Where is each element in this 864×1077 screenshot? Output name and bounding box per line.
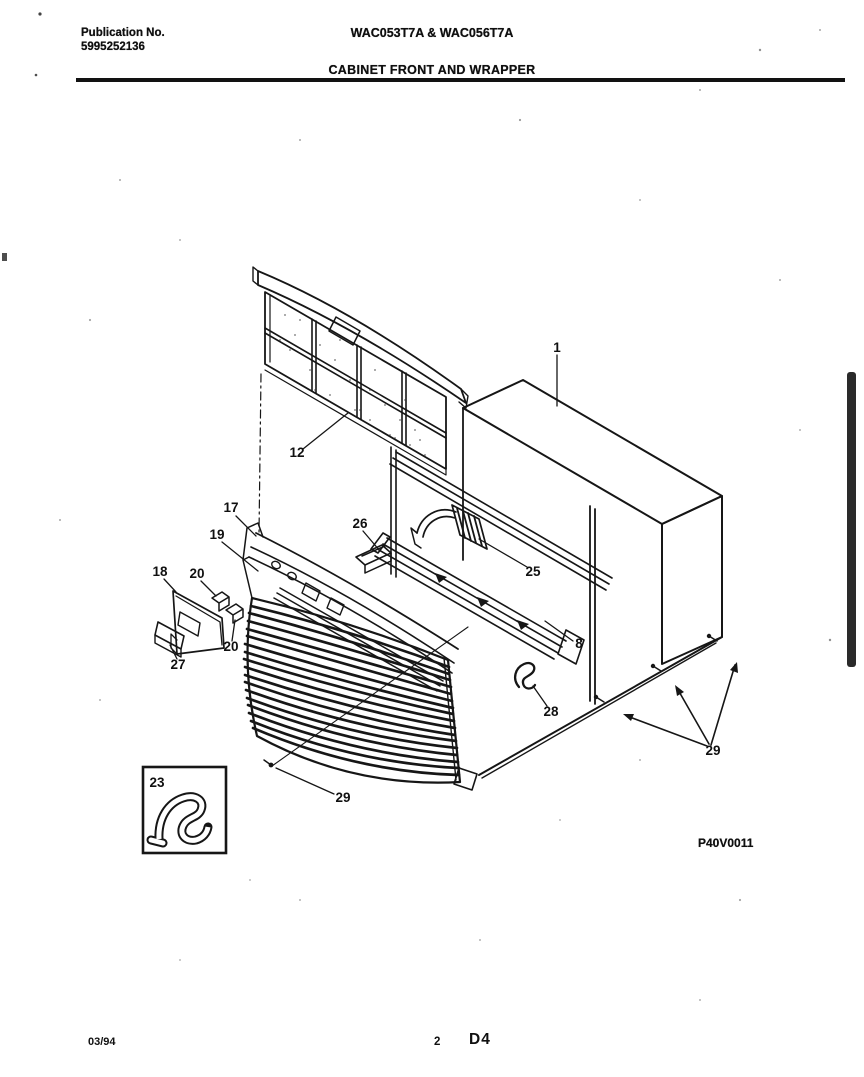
callout-1: 1	[553, 340, 561, 355]
callout-28: 28	[543, 704, 559, 719]
exploded-view-diagram: 12 1 17 19 18 20 20 27 26 25 8 28 29 29 …	[0, 0, 864, 1077]
seal-clip-drawing	[515, 663, 535, 688]
bracket-drawing	[155, 622, 184, 657]
callout-19: 19	[209, 527, 224, 542]
callout-17: 17	[223, 500, 238, 515]
callout-12: 12	[289, 445, 304, 460]
callout-29-side: 29	[705, 743, 720, 758]
callout-20a: 20	[189, 566, 204, 581]
front-grille-drawing	[244, 598, 460, 783]
callout-26: 26	[352, 516, 368, 531]
grille-louvers	[244, 606, 459, 775]
callout-25: 25	[525, 564, 541, 579]
callout-labels: 12 1 17 19 18 20 20 27 26 25 8 28 29 29 …	[149, 340, 720, 805]
screw-glyphs	[264, 627, 717, 767]
callout-20b: 20	[223, 639, 238, 654]
filter-drawing	[253, 267, 468, 534]
callout-29-front: 29	[335, 790, 350, 805]
clip-drawings	[212, 592, 243, 623]
scan-noise	[2, 12, 856, 1001]
air-seal-drawing	[411, 505, 487, 549]
mounting-rail-drawing	[371, 533, 584, 664]
callout-8: 8	[575, 636, 583, 651]
manual-page: Publication No. 5995252136 WAC053T7A & W…	[0, 0, 864, 1077]
callout-23: 23	[149, 775, 165, 790]
callout-18: 18	[152, 564, 168, 579]
callout-27: 27	[170, 657, 185, 672]
channel-bracket-drawing	[356, 545, 391, 573]
